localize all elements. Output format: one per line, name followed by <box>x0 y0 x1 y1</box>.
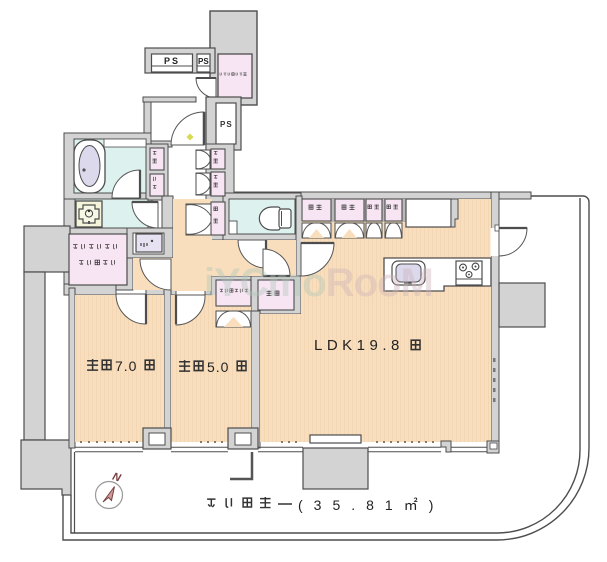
svg-text:PS: PS <box>220 120 233 129</box>
svg-text:iYCmoRooM: iYCmoRooM <box>204 261 433 305</box>
svg-text:PS: PS <box>164 56 180 66</box>
svg-text:LDK19.8: LDK19.8 <box>314 337 404 354</box>
svg-text:PS: PS <box>198 57 209 66</box>
svg-text:5.0: 5.0 <box>207 359 229 375</box>
svg-text:(35.81㎡): (35.81㎡) <box>298 497 444 513</box>
svg-text:7.0: 7.0 <box>115 358 137 374</box>
